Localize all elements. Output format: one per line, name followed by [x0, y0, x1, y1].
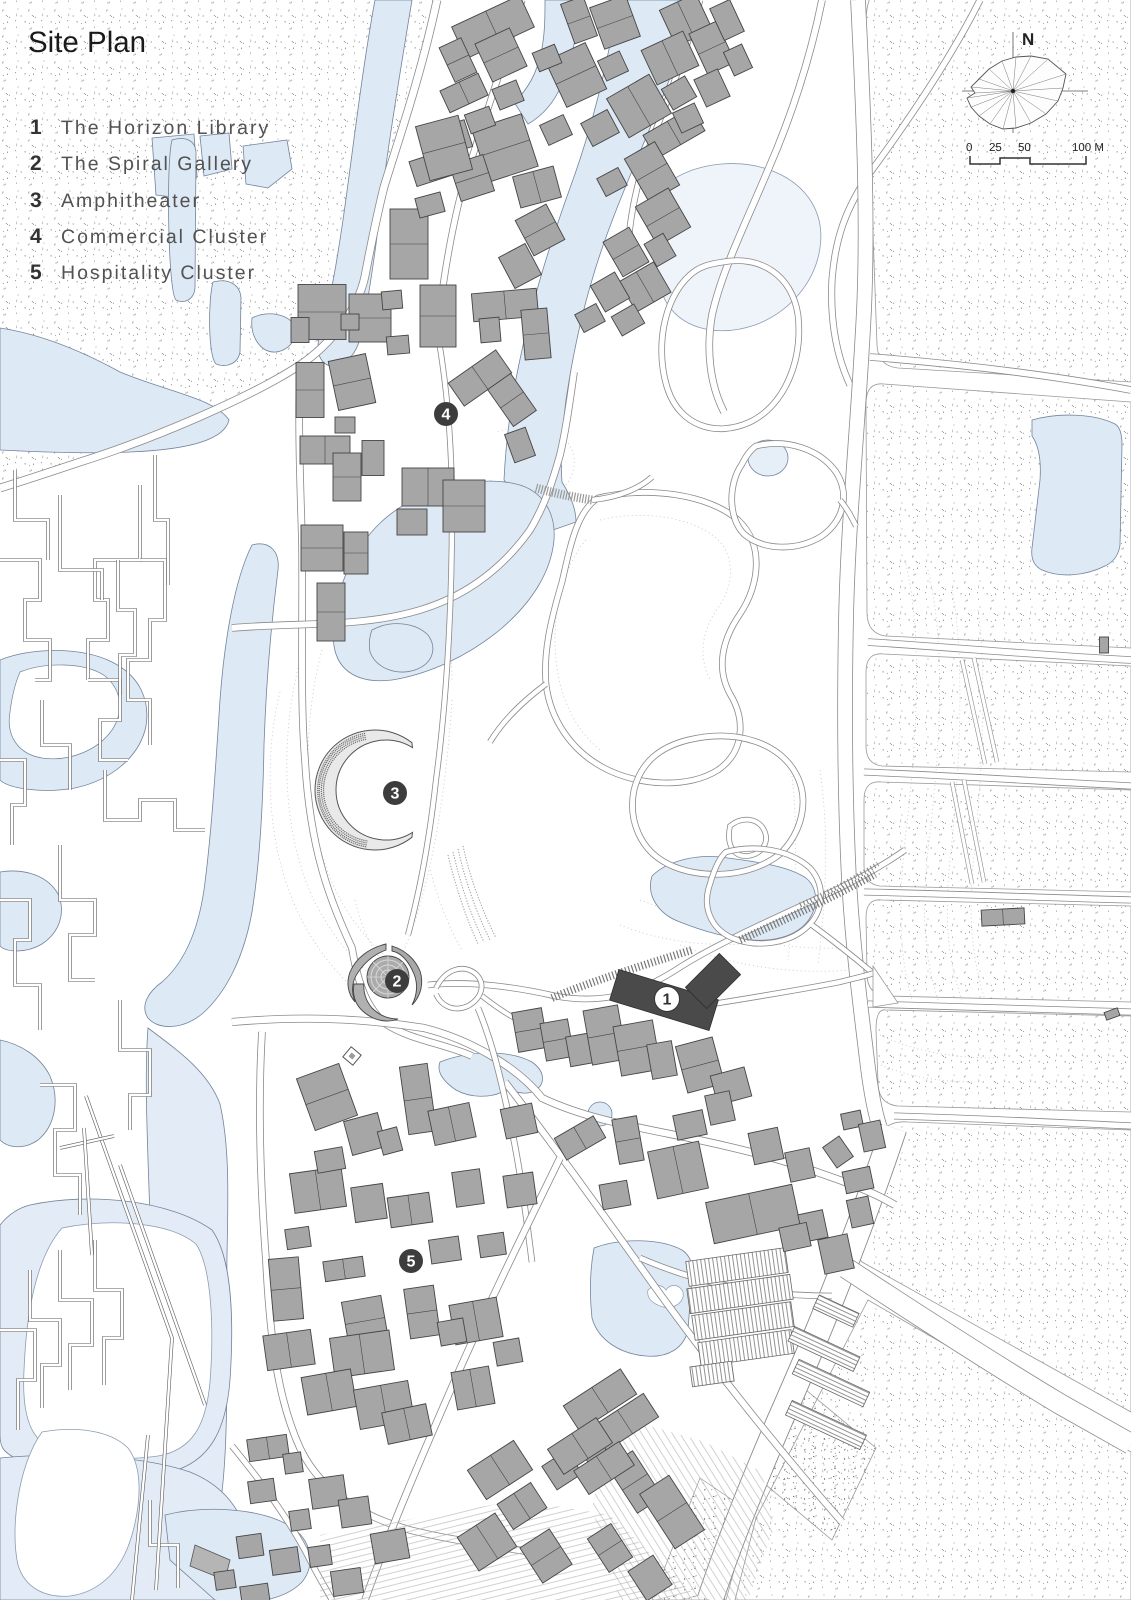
svg-text:The Horizon Library: The Horizon Library: [61, 117, 270, 139]
svg-text:5: 5: [407, 1254, 416, 1271]
svg-text:100 M: 100 M: [1072, 142, 1104, 154]
svg-text:1: 1: [663, 992, 672, 1009]
svg-text:2: 2: [30, 152, 42, 175]
svg-text:1: 1: [30, 116, 42, 139]
svg-text:The Spiral Gallery: The Spiral Gallery: [61, 153, 253, 175]
svg-text:2: 2: [393, 974, 402, 991]
svg-text:3: 3: [30, 189, 42, 212]
svg-text:3: 3: [391, 786, 400, 803]
svg-text:5: 5: [30, 261, 42, 284]
svg-text:Amphitheater: Amphitheater: [61, 190, 201, 212]
svg-text:4: 4: [30, 225, 42, 248]
svg-text:0: 0: [966, 142, 972, 154]
svg-text:Site Plan: Site Plan: [28, 26, 146, 59]
svg-text:50: 50: [1018, 142, 1031, 154]
svg-text:4: 4: [442, 407, 451, 424]
svg-text:Commercial Cluster: Commercial Cluster: [61, 226, 268, 248]
svg-text:Hospitality Cluster: Hospitality Cluster: [61, 262, 256, 284]
svg-text:25: 25: [989, 142, 1002, 154]
svg-text:N: N: [1022, 30, 1034, 49]
